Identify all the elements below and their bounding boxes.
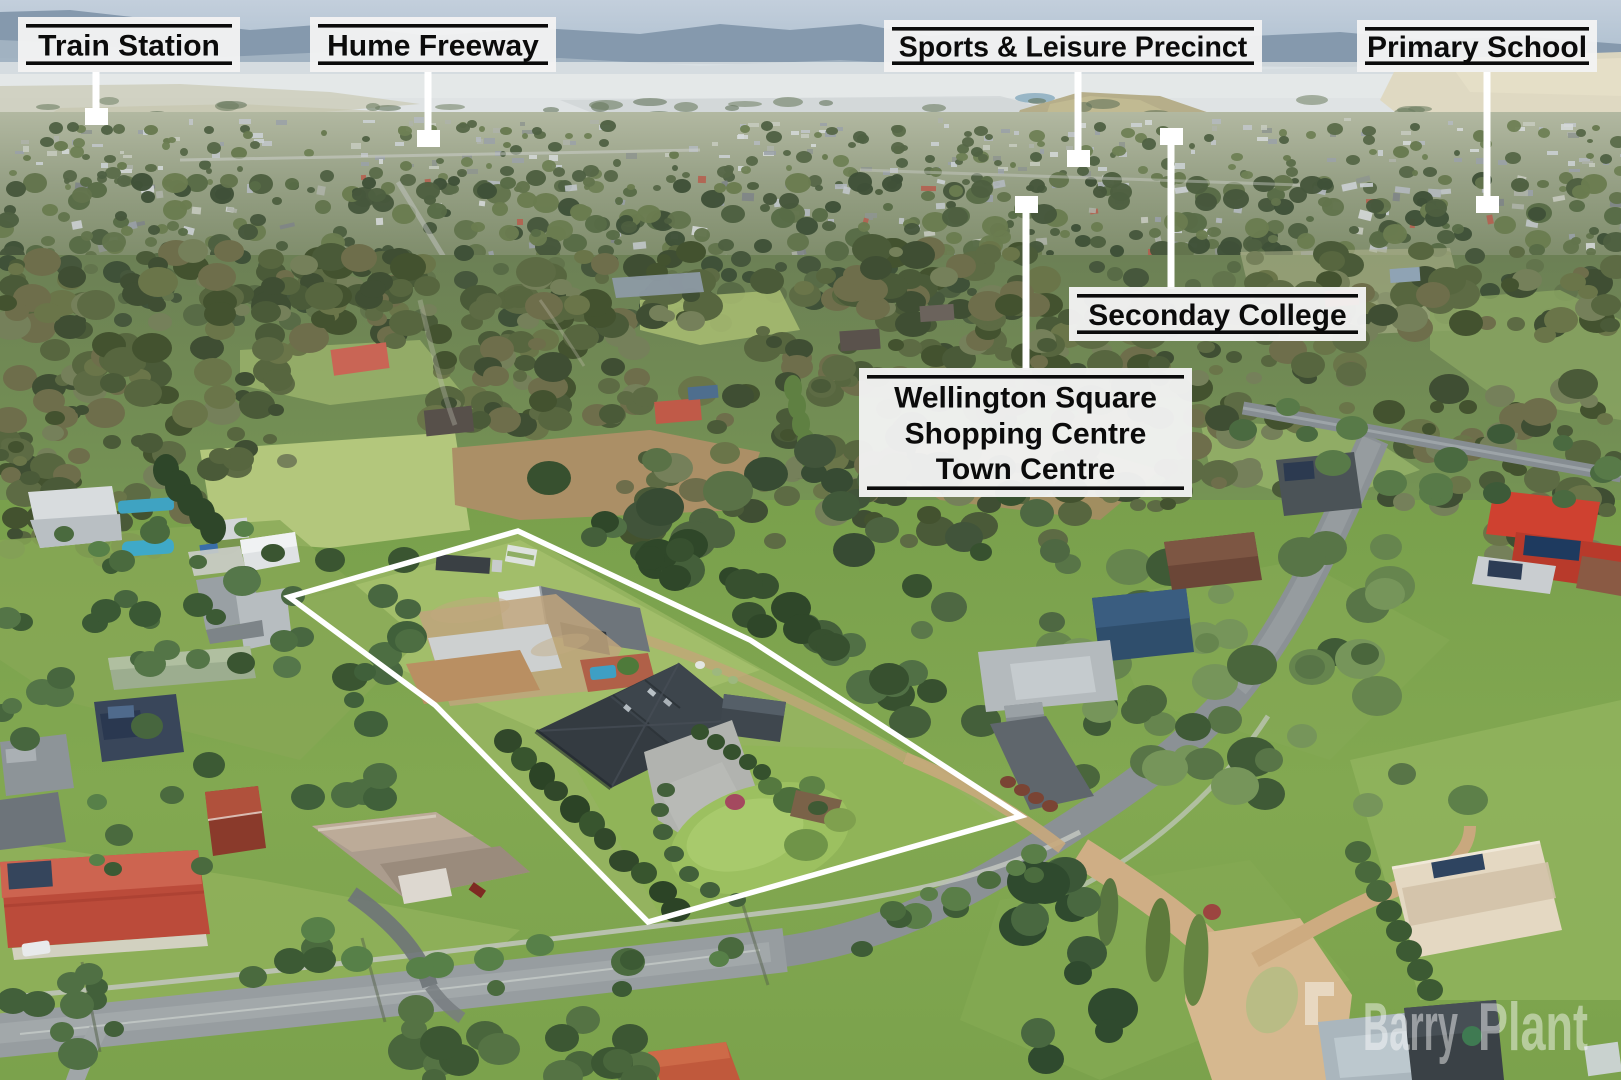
svg-text:Plant: Plant xyxy=(1478,989,1588,1065)
svg-text:Sports & Leisure Precinct: Sports & Leisure Precinct xyxy=(899,31,1248,63)
svg-text:Shopping Centre: Shopping Centre xyxy=(905,417,1147,450)
svg-text:Town Centre: Town Centre xyxy=(936,453,1115,486)
svg-text:Primary School: Primary School xyxy=(1367,31,1587,64)
svg-text:Train Station: Train Station xyxy=(38,29,220,62)
svg-text:Barry: Barry xyxy=(1363,989,1458,1065)
svg-text:Hume Freeway: Hume Freeway xyxy=(327,29,539,62)
svg-text:Seconday College: Seconday College xyxy=(1088,299,1346,332)
svg-text:Wellington Square: Wellington Square xyxy=(894,381,1157,414)
